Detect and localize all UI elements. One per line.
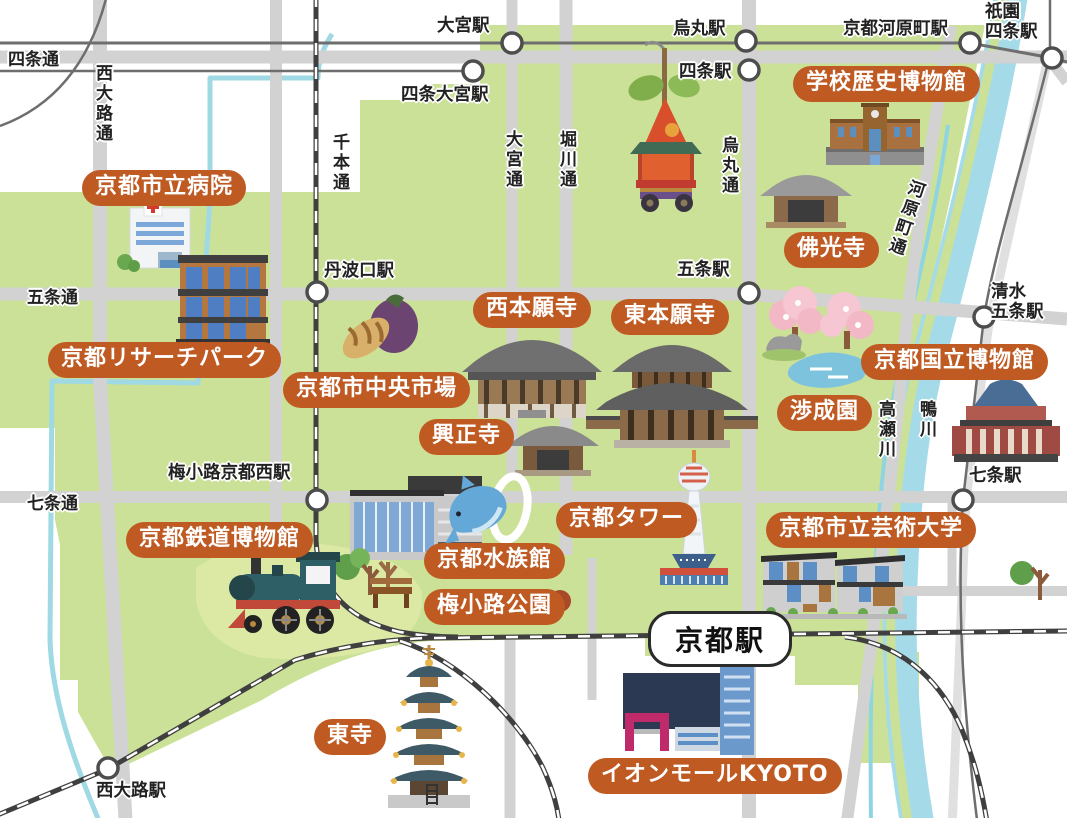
badge-national-museum: 京都国立博物館 <box>861 344 1048 380</box>
station-label-omiya: 大宮駅 <box>437 16 490 36</box>
badge-aquarium: 京都水族館 <box>424 543 565 579</box>
badge-school-history-museum: 学校歴史博物館 <box>793 66 980 102</box>
station-marker-nishioji <box>98 758 118 778</box>
badge-central-market: 京都市中央市場 <box>283 372 470 408</box>
badge-bukkoji: 佛光寺 <box>784 232 879 268</box>
research-park-building-icon <box>176 255 270 351</box>
station-label-shichijo: 七条駅 <box>969 466 1022 486</box>
station-marker-shijo <box>739 60 759 80</box>
map-canvas <box>0 0 1067 818</box>
water-label-kamo-river: 鴨川 <box>914 400 939 440</box>
badge-city-hospital: 京都市立病院 <box>82 170 246 206</box>
badge-research-park: 京都リサーチパーク <box>48 342 281 378</box>
station-label-kiyomizu-gojo: 清水 五条駅 <box>991 282 1044 322</box>
road-label-shijo-dori: 四条通 <box>8 45 59 70</box>
badge-koshoji: 興正寺 <box>419 419 514 455</box>
badge-arts-university: 京都市立芸術大学 <box>766 512 976 548</box>
station-label-gojo: 五条駅 <box>677 260 730 280</box>
badge-toji: 東寺 <box>314 719 386 755</box>
badge-umekoji-park: 梅小路公園 <box>424 589 565 625</box>
road-label-karasuma-dori: 烏丸通 <box>716 136 741 196</box>
badge-higashi-honganji: 東本願寺 <box>611 299 729 335</box>
road-label-shichijo-dori: 七条通 <box>27 489 78 514</box>
station-marker-karasuma <box>736 31 756 51</box>
station-marker-gion-shijo <box>1042 48 1062 68</box>
kyoto-station-label: 京都駅 <box>648 611 792 667</box>
station-label-umekoji-kyotonishi: 梅小路京都西駅 <box>168 463 291 483</box>
kyoto-illustrated-map: 四条通 西大路通 千本通 大宮通 堀川通 烏丸通 五条通 七条通 河原町通 高瀬… <box>0 0 1067 818</box>
station-marker-umekoji-kyotonishi <box>307 490 327 510</box>
badge-aeon-mall: イオンモールKYOTO <box>588 758 842 794</box>
station-marker-tambaguchi <box>307 282 327 302</box>
station-marker-shijo-omiya <box>463 61 483 81</box>
station-label-karasuma: 烏丸駅 <box>673 19 726 39</box>
road-label-gojo-dori: 五条通 <box>27 283 78 308</box>
national-museum-building-icon <box>952 372 1060 462</box>
badge-railway-museum: 京都鉄道博物館 <box>126 522 313 558</box>
badge-shoseien: 渉成園 <box>777 395 872 431</box>
road-label-nishioji-dori: 西大路通 <box>90 64 115 144</box>
station-label-tambaguchi: 丹波口駅 <box>324 261 394 281</box>
station-marker-kyoto-kawaramachi <box>960 33 980 53</box>
station-label-shijo: 四条駅 <box>679 62 732 82</box>
station-label-kyoto-kawaramachi: 京都河原町駅 <box>843 19 948 39</box>
badge-nishi-honganji: 西本願寺 <box>473 292 591 328</box>
station-marker-shichijo <box>953 490 973 510</box>
road-label-omiya-dori: 大宮通 <box>500 130 525 190</box>
shopping-mall-icon <box>623 665 754 755</box>
university-building-icon <box>759 552 907 619</box>
water-label-takase-river: 高瀬川 <box>873 400 898 460</box>
station-label-shijo-omiya: 四条大宮駅 <box>401 85 489 105</box>
badge-kyoto-tower: 京都タワー <box>556 502 697 538</box>
road-label-horikawa-dori: 堀川通 <box>554 130 579 190</box>
road-label-senbon-dori: 千本通 <box>327 133 352 193</box>
station-marker-gojo <box>739 283 759 303</box>
station-marker-omiya <box>502 33 522 53</box>
station-label-nishioji: 西大路駅 <box>96 781 166 801</box>
station-label-gion-shijo: 祇園 四条駅 <box>985 2 1038 42</box>
